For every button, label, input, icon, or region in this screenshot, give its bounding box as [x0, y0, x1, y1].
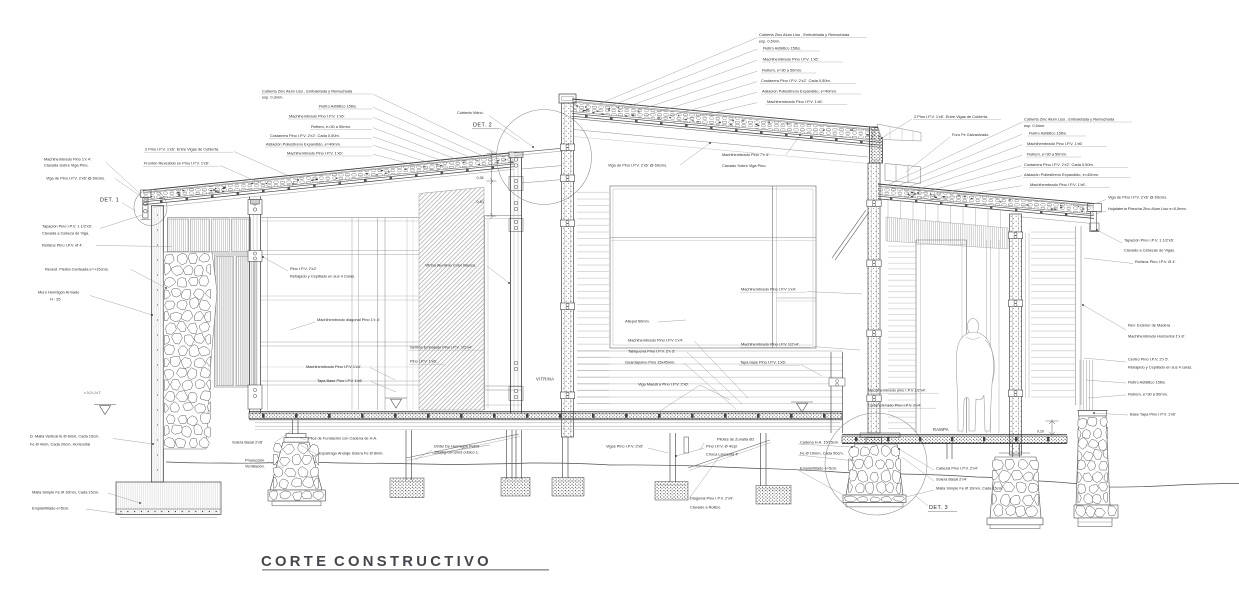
svg-text:Clavada a Cabeza de Viga.: Clavada a Cabeza de Viga. — [42, 231, 89, 236]
svg-text:Tapa Base Pino I.P.V 1'x6'.: Tapa Base Pino I.P.V 1'x6'. — [317, 378, 363, 383]
svg-text:Fieltro Asfáltico 15lbs.: Fieltro Asfáltico 15lbs. — [1029, 130, 1067, 135]
svg-text:H - 25: H - 25 — [50, 297, 61, 302]
svg-text:Clavada Sobre Viga Pino.: Clavada Sobre Viga Pino. — [44, 163, 88, 168]
svg-text:Fieltro Asfáltico 15lbs.: Fieltro Asfáltico 15lbs. — [319, 103, 357, 108]
svg-text:Rebajado y Cepillado en sus 4: Rebajado y Cepillado en sus 4 caras. — [1128, 365, 1192, 370]
svg-text:Cadena H.A. 15/15cm.: Cadena H.A. 15/15cm. — [800, 440, 839, 445]
svg-text:Fieltem, e=30 a 50mm.: Fieltem, e=30 a 50mm. — [1027, 151, 1067, 156]
svg-text:Aislación Poliestireno Expandi: Aislación Poliestireno Expandido, e=40mm… — [266, 141, 341, 146]
svg-text:Machihembrado Pino I.P.V 1/2'x: Machihembrado Pino I.P.V 1/2'x4'. — [741, 342, 800, 347]
svg-text:Diagonal Pino I.P.V. 2'x4'.: Diagonal Pino I.P.V. 2'x4'. — [690, 496, 734, 501]
svg-text:0,38: 0,38 — [477, 176, 484, 180]
svg-text:DET. 2: DET. 2 — [473, 123, 492, 129]
svg-text:Cadenetenado Pino I.P.V. 2'x: Cadenetenado Pino I.P.V. 2'x4'. — [868, 403, 922, 408]
svg-text:Emplantillado e=5cm.: Emplantillado e=5cm. — [800, 466, 837, 471]
svg-text:Hojalatería Plancha Zinc Alum: Hojalatería Plancha Zinc Alum Liso e=0,5… — [1108, 206, 1187, 211]
svg-text:Base Tapa Pino I.P.V. 1'x6': Base Tapa Pino I.P.V. 1'x6' — [1130, 412, 1176, 417]
svg-text:DET. 1: DET. 1 — [100, 198, 119, 204]
svg-text:Espárrago Anclaje Solera Fe Ø: Espárrago Anclaje Solera Fe Ø 8mm. — [319, 451, 383, 456]
svg-text:Crioca Lanceota 4': Crioca Lanceota 4' — [706, 452, 739, 457]
svg-text:Machihembrado Pino I.P.V. 1'x: Machihembrado Pino I.P.V. 1'x6'. — [287, 150, 343, 155]
svg-text:Machihembrado Pino I.P.V. 1'x: Machihembrado Pino I.P.V. 1'x6'. — [1027, 141, 1083, 146]
svg-text:Costanera Pino I.P.V. 2'x2'.: Costanera Pino I.P.V. 2'x2'. Cada 0,50m. — [270, 133, 340, 138]
svg-text:Rev: Exterior de Madera: Rev: Exterior de Madera — [1128, 323, 1171, 328]
svg-text:Ventilación.: Ventilación. — [245, 464, 265, 469]
svg-text:Tabiquería Pino I.P.V. 2'x 3'.: Tabiquería Pino I.P.V. 2'x 3'. — [628, 349, 676, 354]
svg-text:Fe Ø 4mm, Cada 20cm. Horizonta: Fe Ø 4mm, Cada 20cm. Horizontal — [30, 442, 90, 447]
svg-text:esp. 0,5mm.: esp. 0,5mm. — [1024, 123, 1045, 128]
svg-text:Aislación Poliestireno Expandi: Aislación Poliestireno Expandido, e=40mm… — [1024, 172, 1099, 177]
svg-text:Machihembrado Horizontal 1'x 8: Machihembrado Horizontal 1'x 8'. — [1128, 334, 1186, 339]
svg-text:Machihembrado Pino I.P.V. 1'x: Machihembrado Pino I.P.V. 1'x6'. — [763, 56, 819, 61]
svg-text:Aislación Poliestireno Expandi: Aislación Poliestireno Expandido, e=40mm… — [762, 88, 837, 93]
svg-text:Viga Maestra Pino I.P.V. 2'x6': Viga Maestra Pino I.P.V. 2'x6'. — [638, 382, 689, 387]
svg-text:Machihembrado Pino I.P.V 1'x4': Machihembrado Pino I.P.V 1'x4'. — [741, 287, 797, 292]
svg-text:0,40: 0,40 — [477, 200, 484, 204]
svg-text:Viga de Pino I.P.V. 2'x6' @ 6: Viga de Pino I.P.V. 2'x6' @ 60cms. — [46, 176, 105, 181]
svg-text:D. Malla Vertical fe Ø 8mm, Ca: D. Malla Vertical fe Ø 8mm, Cada 15cm. — [30, 434, 99, 439]
svg-text:Malla Simple Fe Ø 10mm, Cada 1: Malla Simple Fe Ø 10mm, Cada 15cm. — [32, 490, 99, 495]
svg-text:Costanera Pino I.P.V. 2'x2'.: Costanera Pino I.P.V. 2'x2'. Cada 0,50m. — [761, 78, 831, 83]
svg-text:Machihembrado Pino I.P.V. 1'x: Machihembrado Pino I.P.V. 1'x6'. — [1030, 182, 1086, 187]
svg-text:Fieltem, e=30 a 50mm.: Fieltem, e=30 a 50mm. — [762, 67, 802, 72]
svg-text:Machihembrado diagonal Pino 1: Machihembrado diagonal Pino 1'x 4'. — [317, 317, 381, 322]
svg-text:Muro Hormigón Armado: Muro Hormigón Armado — [38, 290, 79, 295]
svg-text:Costanera Pino I.P.V. 2'x2'.: Costanera Pino I.P.V. 2'x2'. Cada 0,50m. — [1024, 162, 1094, 167]
svg-text:± 0,0 L.N.T.: ± 0,0 L.N.T. — [84, 391, 101, 395]
svg-text:Fe Ø 10mm, Cada 50cm.: Fe Ø 10mm, Cada 50cm. — [800, 451, 844, 456]
svg-text:Serrina Embalado Pino I.P.V.: Serrina Embalado Pino I.P.V. 1/2'x4' — [410, 345, 472, 350]
svg-text:Viga de Pino I.P.V. 2'x6' @ 6: Viga de Pino I.P.V. 2'x6' @ 60cms. — [608, 163, 667, 168]
svg-text:Pilotes de Zunaita 6D: Pilotes de Zunaita 6D — [717, 437, 754, 442]
svg-text:Vitrina Aluminio Color Blanca.: Vitrina Aluminio Color Blanca. — [425, 263, 476, 268]
svg-text:Pilca de Fundación con Cadena: Pilca de Fundación con Cadena de H.A. — [308, 436, 377, 441]
svg-text:Clavado a Rollizo.: Clavado a Rollizo. — [690, 505, 721, 510]
svg-text:Emplantillado e=5cm.: Emplantillado e=5cm. — [32, 506, 69, 511]
svg-text:Rollizos Pino I.P.V. Ø 4'.: Rollizos Pino I.P.V. Ø 4'. — [42, 243, 83, 248]
svg-text:Pino I.P.V. Ø 4/cpl: Pino I.P.V. Ø 4/cpl — [706, 444, 737, 449]
svg-text:Machihembrado Pino 7'x 4'.: Machihembrado Pino 7'x 4'. — [722, 152, 770, 157]
svg-text:Tapa base Pino I.P.V. 1'x6'.: Tapa base Pino I.P.V. 1'x6'. — [740, 360, 786, 365]
svg-text:Machihembrado Pino I.P.V. 1'x6: Machihembrado Pino I.P.V. 1'x6'. — [289, 113, 345, 118]
svg-text:Viga de Pino I.P.V. 2'x6' @ 6: Viga de Pino I.P.V. 2'x6' @ 60cms. — [1108, 195, 1167, 200]
svg-text:Machihembrado Pino I.P.V 1'x4': Machihembrado Pino I.P.V 1'x4'. — [628, 338, 684, 343]
svg-text:Machihembrado Pino 1'x 4'.: Machihembrado Pino 1'x 4'. — [44, 157, 92, 162]
svg-text:Fieltem, e=30 a 50mm.: Fieltem, e=30 a 50mm. — [311, 124, 351, 129]
svg-text:Rollizos Pino I.P.V. Ø 4'.: Rollizos Pino I.P.V. Ø 4'. — [1135, 259, 1176, 264]
svg-text:CORTE: CORTE — [261, 554, 329, 570]
svg-text:Cubierta Zinc Alum Liso , Embo: Cubierta Zinc Alum Liso , Emboletada y R… — [759, 32, 850, 37]
svg-text:Machihembrado Pino I.P.V 1'x4': Machihembrado Pino I.P.V 1'x4'. — [306, 364, 362, 369]
svg-text:RAMPA: RAMPA — [933, 427, 949, 432]
svg-text:Cubierta Zinc Alum Liso , Emba: Cubierta Zinc Alum Liso , Embaletada y R… — [262, 88, 353, 93]
svg-text:Pino I.P.V. 1'x6'.: Pino I.P.V. 1'x6'. — [410, 359, 437, 364]
svg-text:Cubierta Zinc Alum Liso , Emba: Cubierta Zinc Alum Liso , Embaletada y R… — [1024, 116, 1115, 121]
svg-text:Cabezal Pino I.P.V. 2'x4': Cabezal Pino I.P.V. 2'x4' — [936, 466, 978, 471]
svg-text:Solera Basal 2'x6': Solera Basal 2'x6' — [232, 440, 263, 445]
svg-text:2 Pino I.P.V. 1'x6'. Entre Vi: 2 Pino I.P.V. 1'x6'. Entre Vigas de Cubi… — [145, 147, 219, 152]
svg-text:Solera Basal 2'x4': Solera Basal 2'x4' — [936, 477, 967, 482]
svg-text:Machihembrado pino I.P.V 1/2'x: Machihembrado pino I.P.V 1/2'x4'. — [868, 388, 927, 393]
svg-text:Foro Fe Galvanizado.: Foro Fe Galvanizado. — [952, 132, 989, 137]
svg-text:Malla Simple Fe Ø 10mm, Cada 1: Malla Simple Fe Ø 10mm, Cada 15cm. — [936, 486, 1003, 491]
svg-text:VITRINA: VITRINA — [536, 377, 554, 382]
svg-text:Pino I.P.V. 2'x2'.: Pino I.P.V. 2'x2'. — [290, 266, 317, 271]
svg-text:DET. 3: DET. 3 — [929, 505, 948, 511]
svg-text:Cubierta Vidrio.: Cubierta Vidrio. — [457, 110, 484, 115]
svg-text:Frontón Revestido en Pino I.P.: Frontón Revestido en Pino I.P.V. 1'x6'. — [144, 161, 210, 166]
svg-text:Guardapolvo Pino 15x45mm.: Guardapolvo Pino 15x45mm. — [625, 360, 675, 365]
svg-text:Clavado a Cabezas de Vigas.: Clavado a Cabezas de Vigas. — [1124, 248, 1175, 253]
svg-text:Centro Pino I.P.V. 2'x 5'.: Centro Pino I.P.V. 2'x 5'. — [1128, 357, 1169, 362]
svg-text:Fieltem, e=30 a 50mm.: Fieltem, e=30 a 50mm. — [1128, 392, 1168, 397]
svg-text:CONSTRUCTIVO: CONSTRUCTIVO — [334, 554, 492, 570]
svg-text:Tapación Pino I.P.V. 1 1/2'x6: Tapación Pino I.P.V. 1 1/2'x6'. — [42, 224, 93, 229]
svg-text:Clavado Sobre Viga Pino.: Clavado Sobre Viga Pino. — [722, 163, 766, 168]
svg-text:Atiepol 50mm.: Atiepol 50mm. — [625, 319, 650, 324]
svg-text:2 Pino I.P.V. 1'x6'. Entre Vi: 2 Pino I.P.V. 1'x6'. Entre Vigas de Cubi… — [914, 114, 988, 119]
svg-text:esp. 0,5mm.: esp. 0,5mm. — [759, 38, 780, 43]
svg-text:Revest. Piedra Canteada e=+1: Revest. Piedra Canteada e=+15cms. — [45, 267, 109, 272]
svg-text:Machihembrado Pino I.P.V. 1'x: Machihembrado Pino I.P.V. 1'x6'. — [767, 99, 823, 104]
svg-text:0,20: 0,20 — [1037, 430, 1044, 434]
svg-text:Rebajado y Cepillado en sus 4: Rebajado y Cepillado en sus 4 Caras. — [290, 274, 355, 279]
svg-text:Fieltro Asfáltico 15lbs.: Fieltro Asfáltico 15lbs. — [763, 45, 801, 50]
svg-text:Tapación Pino I.P.V. 1 1/2'x6: Tapación Pino I.P.V. 1 1/2'x6'. — [1124, 238, 1175, 243]
svg-text:Fieltro Asfáltico 15lbs.: Fieltro Asfáltico 15lbs. — [1128, 380, 1166, 385]
svg-text:Vigas Pino I.P.V. 2'x6': Vigas Pino I.P.V. 2'x6' — [606, 444, 643, 449]
svg-text:Proyección: Proyección — [245, 458, 264, 463]
svg-text:esp. 0,3mm.: esp. 0,3mm. — [262, 94, 283, 99]
